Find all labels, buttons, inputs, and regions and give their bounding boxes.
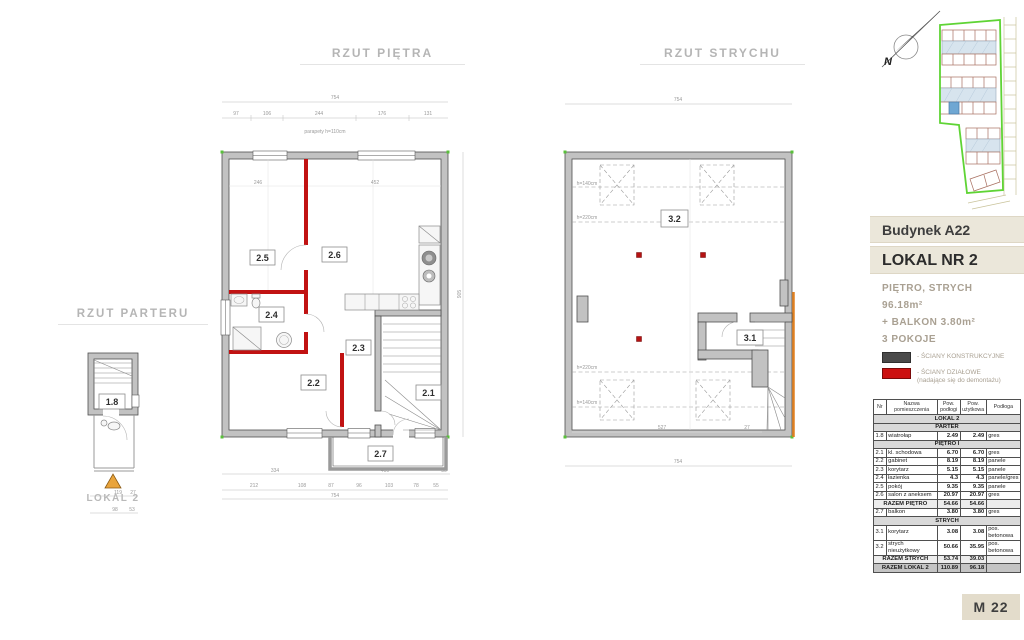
area-table-container: Nr Nazwa pomieszczenia Pow. podłogi Pow.…: [873, 399, 1021, 573]
table-row: 1.8wiatrołap 2.492.49 gres: [874, 432, 1021, 441]
svg-text:h=220cm: h=220cm: [577, 215, 598, 221]
building-row-a: [942, 30, 996, 65]
table-row: 2.2gabinet 8.198.19 panele: [874, 457, 1021, 466]
svg-text:97: 97: [233, 111, 239, 117]
svg-text:754: 754: [331, 493, 340, 499]
partition-wall-swatch: [882, 368, 911, 379]
table-section-row: PIĘTRO I: [874, 440, 1021, 449]
svg-text:244: 244: [315, 111, 324, 117]
svg-text:3.1: 3.1: [744, 333, 757, 343]
area-line: 96.18m²: [882, 297, 975, 314]
svg-text:212: 212: [250, 483, 259, 489]
svg-text:2.3: 2.3: [352, 343, 365, 353]
table-sum-row: RAZEM STRYCH 53.74 39.03: [874, 555, 1021, 564]
svg-text:2.4: 2.4: [265, 310, 278, 320]
entrance-triangle-marker: [105, 474, 121, 488]
strych-plan-drawing: 754 h=140cm h=220cm h=220cm h=140cm: [553, 88, 815, 508]
window-sill-annotation: parapety h=110cm: [304, 129, 345, 135]
svg-text:55: 55: [433, 483, 439, 489]
north-arrow-icon: N: [882, 11, 940, 68]
svg-text:98: 98: [112, 507, 118, 513]
pietro-plan-drawing: 754 97 106 244 176 131 parapety h=110cm: [213, 88, 471, 508]
svg-text:119: 119: [114, 490, 122, 496]
svg-text:h=140cm: h=140cm: [577, 181, 598, 187]
area-table: Nr Nazwa pomieszczenia Pow. podłogi Pow.…: [873, 399, 1021, 573]
svg-text:78: 78: [413, 483, 419, 489]
table-row: 2.6salon z aneksem 20.9720.97 gres: [874, 491, 1021, 500]
svg-text:30: 30: [441, 468, 447, 474]
table-section-row: PARTER: [874, 423, 1021, 432]
highlighted-unit-a22: [949, 102, 959, 114]
svg-text:754: 754: [331, 95, 340, 101]
legend-partition-label: - ŚCIANY DZIAŁOWE (nadające się do demon…: [917, 368, 1001, 385]
svg-text:3.2: 3.2: [668, 214, 681, 224]
legend-structural-label: - ŚCIANY KONSTRUKCYJNE: [917, 352, 1004, 361]
svg-text:754: 754: [674, 459, 683, 465]
svg-text:176: 176: [378, 111, 387, 117]
svg-text:27: 27: [744, 425, 750, 431]
room-number: 1.8: [106, 397, 119, 407]
svg-text:2.2: 2.2: [307, 378, 320, 388]
strych-plan-title: RZUT STRYCHU: [640, 46, 805, 65]
svg-text:87: 87: [328, 483, 334, 489]
table-row: 2.5pokój 9.359.35 panele: [874, 483, 1021, 492]
svg-text:106: 106: [263, 111, 272, 117]
svg-text:h=220cm: h=220cm: [577, 365, 598, 371]
svg-text:334: 334: [271, 468, 280, 474]
table-header-row: Nr Nazwa pomieszczenia Pow. podłogi Pow.…: [874, 400, 1021, 415]
svg-text:452: 452: [371, 180, 380, 186]
legend-structural: - ŚCIANY KONSTRUKCYJNE: [882, 352, 1004, 363]
svg-text:131: 131: [424, 111, 433, 117]
wall-legend: - ŚCIANY KONSTRUKCYJNE - ŚCIANY DZIAŁOWE…: [882, 352, 1004, 390]
pietro-dimensions-top: 754 97 106 244 176 131 parapety h=110cm: [222, 95, 448, 135]
svg-text:h=140cm: h=140cm: [577, 400, 598, 406]
north-label: N: [884, 56, 893, 68]
svg-text:2.7: 2.7: [374, 449, 387, 459]
strych-walls: [564, 151, 794, 439]
table-row: 2.7balkon 3.803.80 gres: [874, 508, 1021, 517]
svg-text:400: 400: [381, 468, 390, 474]
rooms-count-line: 3 POKOJE: [882, 331, 975, 348]
balcony-line: + BALKON 3.80m²: [882, 314, 975, 331]
svg-text:108: 108: [298, 483, 307, 489]
pietro-dimensions-bottom: 334 400 30 212 108 87 96 103 78 55 754: [222, 468, 450, 499]
svg-text:246: 246: [254, 180, 263, 186]
floors-line: PIĘTRO, STRYCH: [882, 280, 975, 297]
table-row: 3.2strych nieużytkowy 50.6635.95 pos. be…: [874, 540, 1021, 555]
strych-dimension-top: 754: [565, 97, 792, 104]
table-sum-row: RAZEM PIĘTRO 54.66 54.66: [874, 500, 1021, 509]
table-row: 2.1kl. schodowa 6.706.70 gres: [874, 449, 1021, 458]
table-row: 2.4łazienka 4.34.3 panele/gres: [874, 474, 1021, 483]
svg-text:53: 53: [129, 507, 135, 513]
room-label-1-8: 1.8: [99, 394, 125, 409]
svg-text:96: 96: [356, 483, 362, 489]
legend-partition: - ŚCIANY DZIAŁOWE (nadające się do demon…: [882, 368, 1004, 385]
svg-text:27: 27: [130, 490, 136, 496]
building-row-c: [966, 128, 1000, 191]
table-section-row: STRYCH: [874, 517, 1021, 526]
site-plan-map: N: [876, 3, 1021, 211]
floorplan-sheet: RZUT PIĘTRA RZUT STRYCHU RZUT PARTERU 1.…: [0, 0, 1024, 640]
table-row: 3.1korytarz 3.083.08 pos. betonowa: [874, 525, 1021, 540]
building-title: Budynek A22: [870, 216, 1024, 243]
pietro-dimension-right: 905: [457, 152, 463, 437]
table-row: 2.3korytarz 5.155.15 panele: [874, 466, 1021, 475]
table-section-row: LOKAL 2: [874, 415, 1021, 424]
svg-text:905: 905: [457, 290, 463, 299]
sheet-number-badge: M 22: [962, 594, 1020, 620]
lokal-title: LOKAL NR 2: [870, 246, 1024, 274]
building-row-b: [940, 77, 996, 114]
svg-text:2.6: 2.6: [328, 250, 341, 260]
svg-text:2.1: 2.1: [422, 388, 435, 398]
parter-vestibule: [94, 415, 134, 471]
svg-text:527: 527: [658, 425, 667, 431]
pietro-plan-title: RZUT PIĘTRA: [300, 46, 465, 65]
structural-wall-swatch: [882, 352, 911, 363]
unit-details: PIĘTRO, STRYCH 96.18m² + BALKON 3.80m² 3…: [882, 280, 975, 348]
parter-plan-drawing: 1.8 LOKAL 2 119 27 98 53: [55, 300, 215, 540]
svg-text:2.5: 2.5: [256, 253, 269, 263]
svg-text:103: 103: [385, 483, 394, 489]
svg-text:754: 754: [674, 97, 683, 103]
info-panel: N Budynek A22 LOKAL NR 2 PIĘTRO, STRYCH …: [870, 0, 1024, 640]
table-total-row: RAZEM LOKAL 2 110.89 96.18: [874, 564, 1021, 573]
